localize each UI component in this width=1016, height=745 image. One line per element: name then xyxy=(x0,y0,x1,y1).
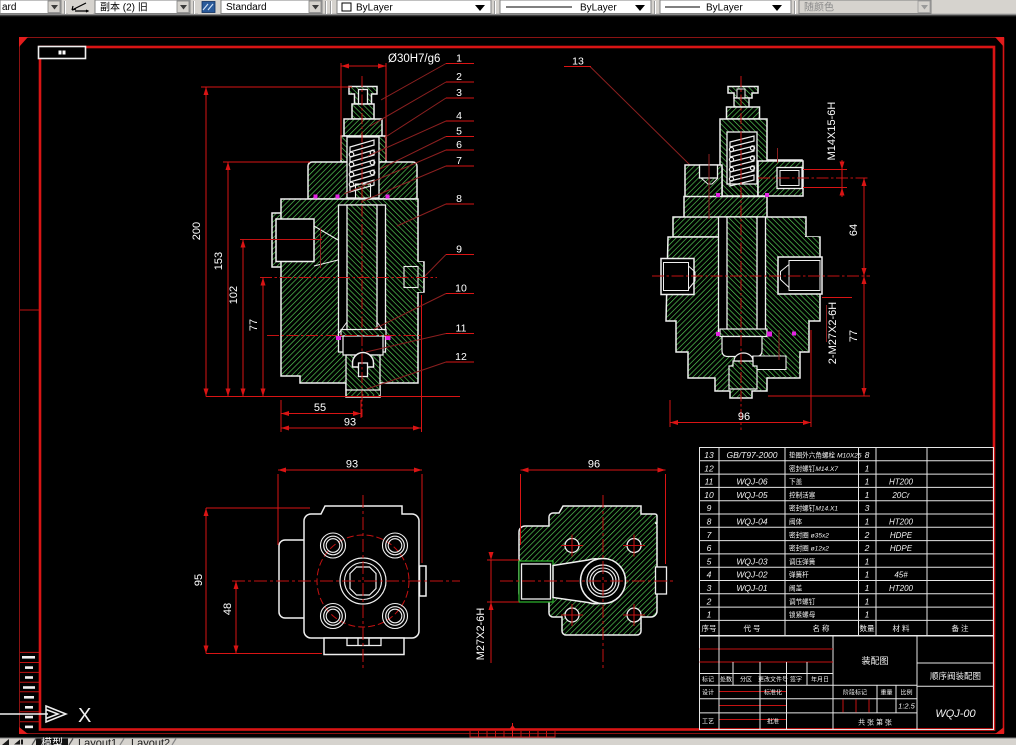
svg-text:96: 96 xyxy=(588,459,600,471)
svg-text:HT200: HT200 xyxy=(889,478,914,487)
svg-text:WQJ-03: WQJ-03 xyxy=(736,556,767,566)
svg-text:1: 1 xyxy=(865,517,870,527)
svg-text:3: 3 xyxy=(456,87,462,99)
svg-text:1: 1 xyxy=(865,610,870,620)
svg-text:密封圈 ø35x2: 密封圈 ø35x2 xyxy=(789,530,829,539)
svg-text:9: 9 xyxy=(456,244,462,256)
svg-text:1:2.5: 1:2.5 xyxy=(898,702,916,711)
svg-text:10: 10 xyxy=(455,283,467,295)
svg-text:HDPE: HDPE xyxy=(890,544,913,553)
svg-text:1: 1 xyxy=(865,556,870,566)
svg-text:GB/T97-2000: GB/T97-2000 xyxy=(726,450,777,460)
svg-text:阶段标记: 阶段标记 xyxy=(843,689,867,697)
svg-text:序号: 序号 xyxy=(702,623,717,633)
svg-text:锁紧螺母: 锁紧螺母 xyxy=(789,610,816,619)
svg-text:ByLayer: ByLayer xyxy=(706,3,743,14)
svg-text:95: 95 xyxy=(193,574,205,586)
svg-text:WQJ-06: WQJ-06 xyxy=(736,477,767,487)
svg-text:分区: 分区 xyxy=(740,676,752,684)
svg-text:工艺: 工艺 xyxy=(702,718,714,726)
svg-text:年月日: 年月日 xyxy=(811,676,829,684)
svg-text:55: 55 xyxy=(314,402,326,414)
svg-text:6: 6 xyxy=(707,543,712,553)
svg-text:比例: 比例 xyxy=(900,689,912,697)
svg-text:12: 12 xyxy=(704,463,714,473)
svg-text:下盖: 下盖 xyxy=(789,477,803,486)
svg-text:153: 153 xyxy=(213,252,225,270)
svg-text:共 张 第 张: 共 张 第 张 xyxy=(858,718,892,727)
svg-text:名 称: 名 称 xyxy=(812,623,830,633)
svg-text:调压弹簧: 调压弹簧 xyxy=(789,557,816,566)
svg-text:顺序阀装配图: 顺序阀装配图 xyxy=(930,671,981,681)
svg-text:20Cr: 20Cr xyxy=(891,491,910,500)
svg-text:HT200: HT200 xyxy=(889,584,914,593)
svg-text:1: 1 xyxy=(456,53,462,65)
svg-text:48: 48 xyxy=(222,603,234,615)
svg-text:批准: 批准 xyxy=(767,718,779,726)
svg-text:5: 5 xyxy=(707,556,712,566)
svg-text:2: 2 xyxy=(864,530,870,540)
svg-text:93: 93 xyxy=(344,417,356,429)
svg-text:2: 2 xyxy=(706,596,712,606)
svg-text:64: 64 xyxy=(848,224,860,236)
svg-text:密封螺钉M14.X1: 密封螺钉M14.X1 xyxy=(789,504,838,513)
svg-text:垫圈外六角螺栓 M10X25: 垫圈外六角螺栓 M10X25 xyxy=(789,451,862,460)
svg-text:1: 1 xyxy=(865,596,870,606)
svg-text:HDPE: HDPE xyxy=(890,531,913,540)
svg-text:5: 5 xyxy=(456,126,462,138)
svg-text:6: 6 xyxy=(456,139,462,151)
svg-text:13: 13 xyxy=(572,56,584,68)
svg-text:Layout2: Layout2 xyxy=(131,738,170,745)
svg-text:96: 96 xyxy=(738,411,750,423)
svg-text:阀体: 阀体 xyxy=(789,517,803,526)
svg-text:1: 1 xyxy=(865,463,870,473)
svg-text:3: 3 xyxy=(865,503,870,513)
svg-text:控制活塞: 控制活塞 xyxy=(789,490,816,499)
svg-text:设计: 设计 xyxy=(702,689,714,697)
svg-text:9: 9 xyxy=(707,503,712,513)
svg-text:副本 (2) 旧: 副本 (2) 旧 xyxy=(100,1,148,14)
svg-text:标准化: 标准化 xyxy=(764,689,782,697)
svg-text:11: 11 xyxy=(705,477,714,487)
svg-text:200: 200 xyxy=(191,222,203,240)
svg-text:调节螺钉: 调节螺钉 xyxy=(789,597,816,606)
svg-text:密封螺钉M14.X7: 密封螺钉M14.X7 xyxy=(789,464,838,473)
svg-text:77: 77 xyxy=(848,330,860,342)
svg-text:10: 10 xyxy=(704,490,714,500)
svg-text:3: 3 xyxy=(707,583,712,593)
svg-text:1: 1 xyxy=(865,570,870,580)
svg-text:4: 4 xyxy=(707,570,712,580)
svg-text:WQJ-02: WQJ-02 xyxy=(736,570,767,580)
svg-text:ByLayer: ByLayer xyxy=(580,3,617,14)
svg-text:代 号: 代 号 xyxy=(743,623,760,633)
svg-text:1: 1 xyxy=(707,610,712,620)
svg-text:12: 12 xyxy=(455,351,467,363)
svg-text:2: 2 xyxy=(864,543,870,553)
svg-text:7: 7 xyxy=(707,530,712,540)
svg-text:4: 4 xyxy=(456,110,462,122)
svg-text:处数: 处数 xyxy=(720,676,732,684)
svg-text:7: 7 xyxy=(456,155,462,167)
svg-text:1: 1 xyxy=(865,583,870,593)
svg-text:77: 77 xyxy=(248,319,260,331)
svg-text:WQJ-01: WQJ-01 xyxy=(736,583,767,593)
svg-text:ByLayer: ByLayer xyxy=(356,3,393,14)
svg-text:弹簧杆: 弹簧杆 xyxy=(789,570,809,579)
svg-text:阀盖: 阀盖 xyxy=(789,584,803,593)
svg-text:备 注: 备 注 xyxy=(951,623,969,633)
svg-text:11: 11 xyxy=(456,323,467,335)
svg-text:M27X2-6H: M27X2-6H xyxy=(475,608,487,661)
svg-text:8: 8 xyxy=(456,193,462,205)
svg-text:1: 1 xyxy=(865,490,870,500)
svg-text:45#: 45# xyxy=(894,571,908,580)
svg-text:2: 2 xyxy=(456,71,462,83)
svg-text:102: 102 xyxy=(228,286,240,304)
svg-text:Layout1: Layout1 xyxy=(78,738,117,745)
svg-text:M14X15-6H: M14X15-6H xyxy=(826,102,838,161)
svg-text:93: 93 xyxy=(346,459,358,471)
svg-text:随颜色: 随颜色 xyxy=(804,1,834,14)
svg-text:HT200: HT200 xyxy=(889,518,914,527)
svg-text:WQJ-04: WQJ-04 xyxy=(736,517,767,527)
svg-text:装配图: 装配图 xyxy=(861,655,888,666)
svg-text:Standard: Standard xyxy=(226,2,267,13)
svg-text:8: 8 xyxy=(865,450,870,460)
svg-text:模型: 模型 xyxy=(41,736,63,745)
svg-text:Ø30H7/g6: Ø30H7/g6 xyxy=(388,53,440,65)
svg-text:签字: 签字 xyxy=(790,676,802,684)
svg-text:WQJ-00: WQJ-00 xyxy=(935,708,976,720)
svg-text:标记: 标记 xyxy=(702,676,714,684)
svg-text:1: 1 xyxy=(865,477,870,487)
svg-text:13: 13 xyxy=(704,450,714,460)
svg-text:重量: 重量 xyxy=(880,689,892,697)
svg-text:2-M27X2-6H: 2-M27X2-6H xyxy=(827,302,839,364)
svg-text:ard: ard xyxy=(2,2,16,13)
svg-text:X: X xyxy=(78,705,91,727)
svg-text:WQJ-05: WQJ-05 xyxy=(736,490,767,500)
svg-text:数量: 数量 xyxy=(860,623,875,633)
svg-text:更改文件号: 更改文件号 xyxy=(758,676,788,684)
svg-text:材 料: 材 料 xyxy=(892,623,910,633)
svg-text:8: 8 xyxy=(707,517,712,527)
svg-text:密封圈 ø12x2: 密封圈 ø12x2 xyxy=(789,544,829,553)
